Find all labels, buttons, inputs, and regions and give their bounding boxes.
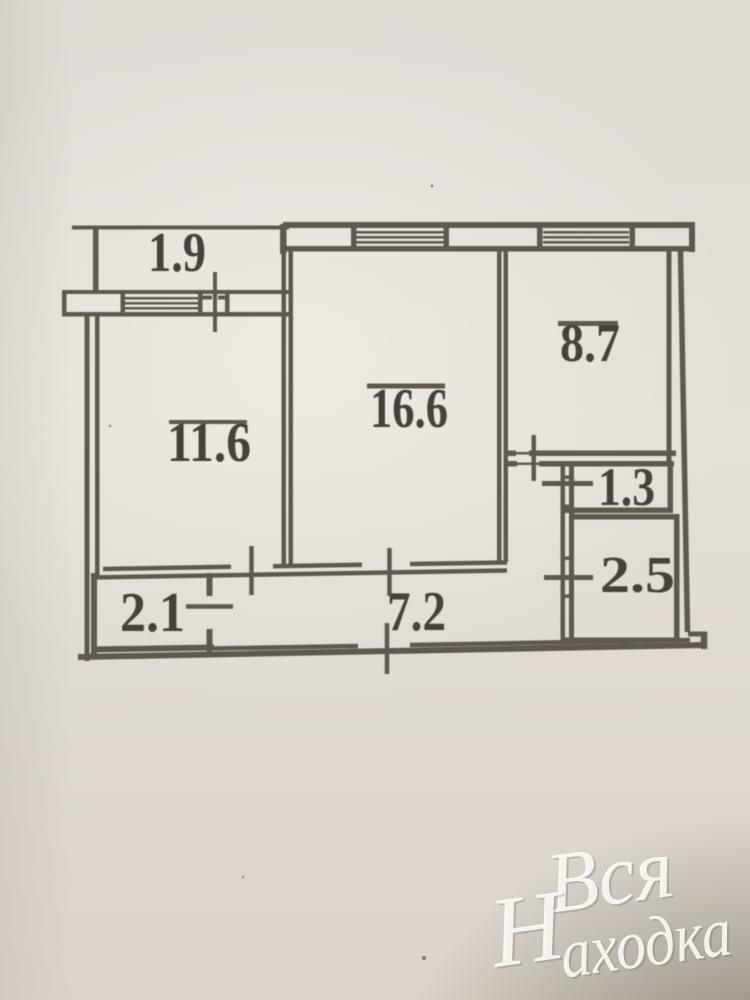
svg-text:7.2: 7.2 bbox=[387, 581, 446, 643]
svg-text:8.7: 8.7 bbox=[560, 313, 620, 373]
svg-text:1.9: 1.9 bbox=[148, 222, 206, 284]
svg-text:1.3: 1.3 bbox=[598, 457, 655, 517]
svg-text:16.6: 16.6 bbox=[370, 378, 448, 440]
svg-text:11.6: 11.6 bbox=[167, 412, 251, 474]
svg-text:2.5: 2.5 bbox=[600, 547, 675, 604]
svg-text:2.1: 2.1 bbox=[120, 582, 185, 644]
